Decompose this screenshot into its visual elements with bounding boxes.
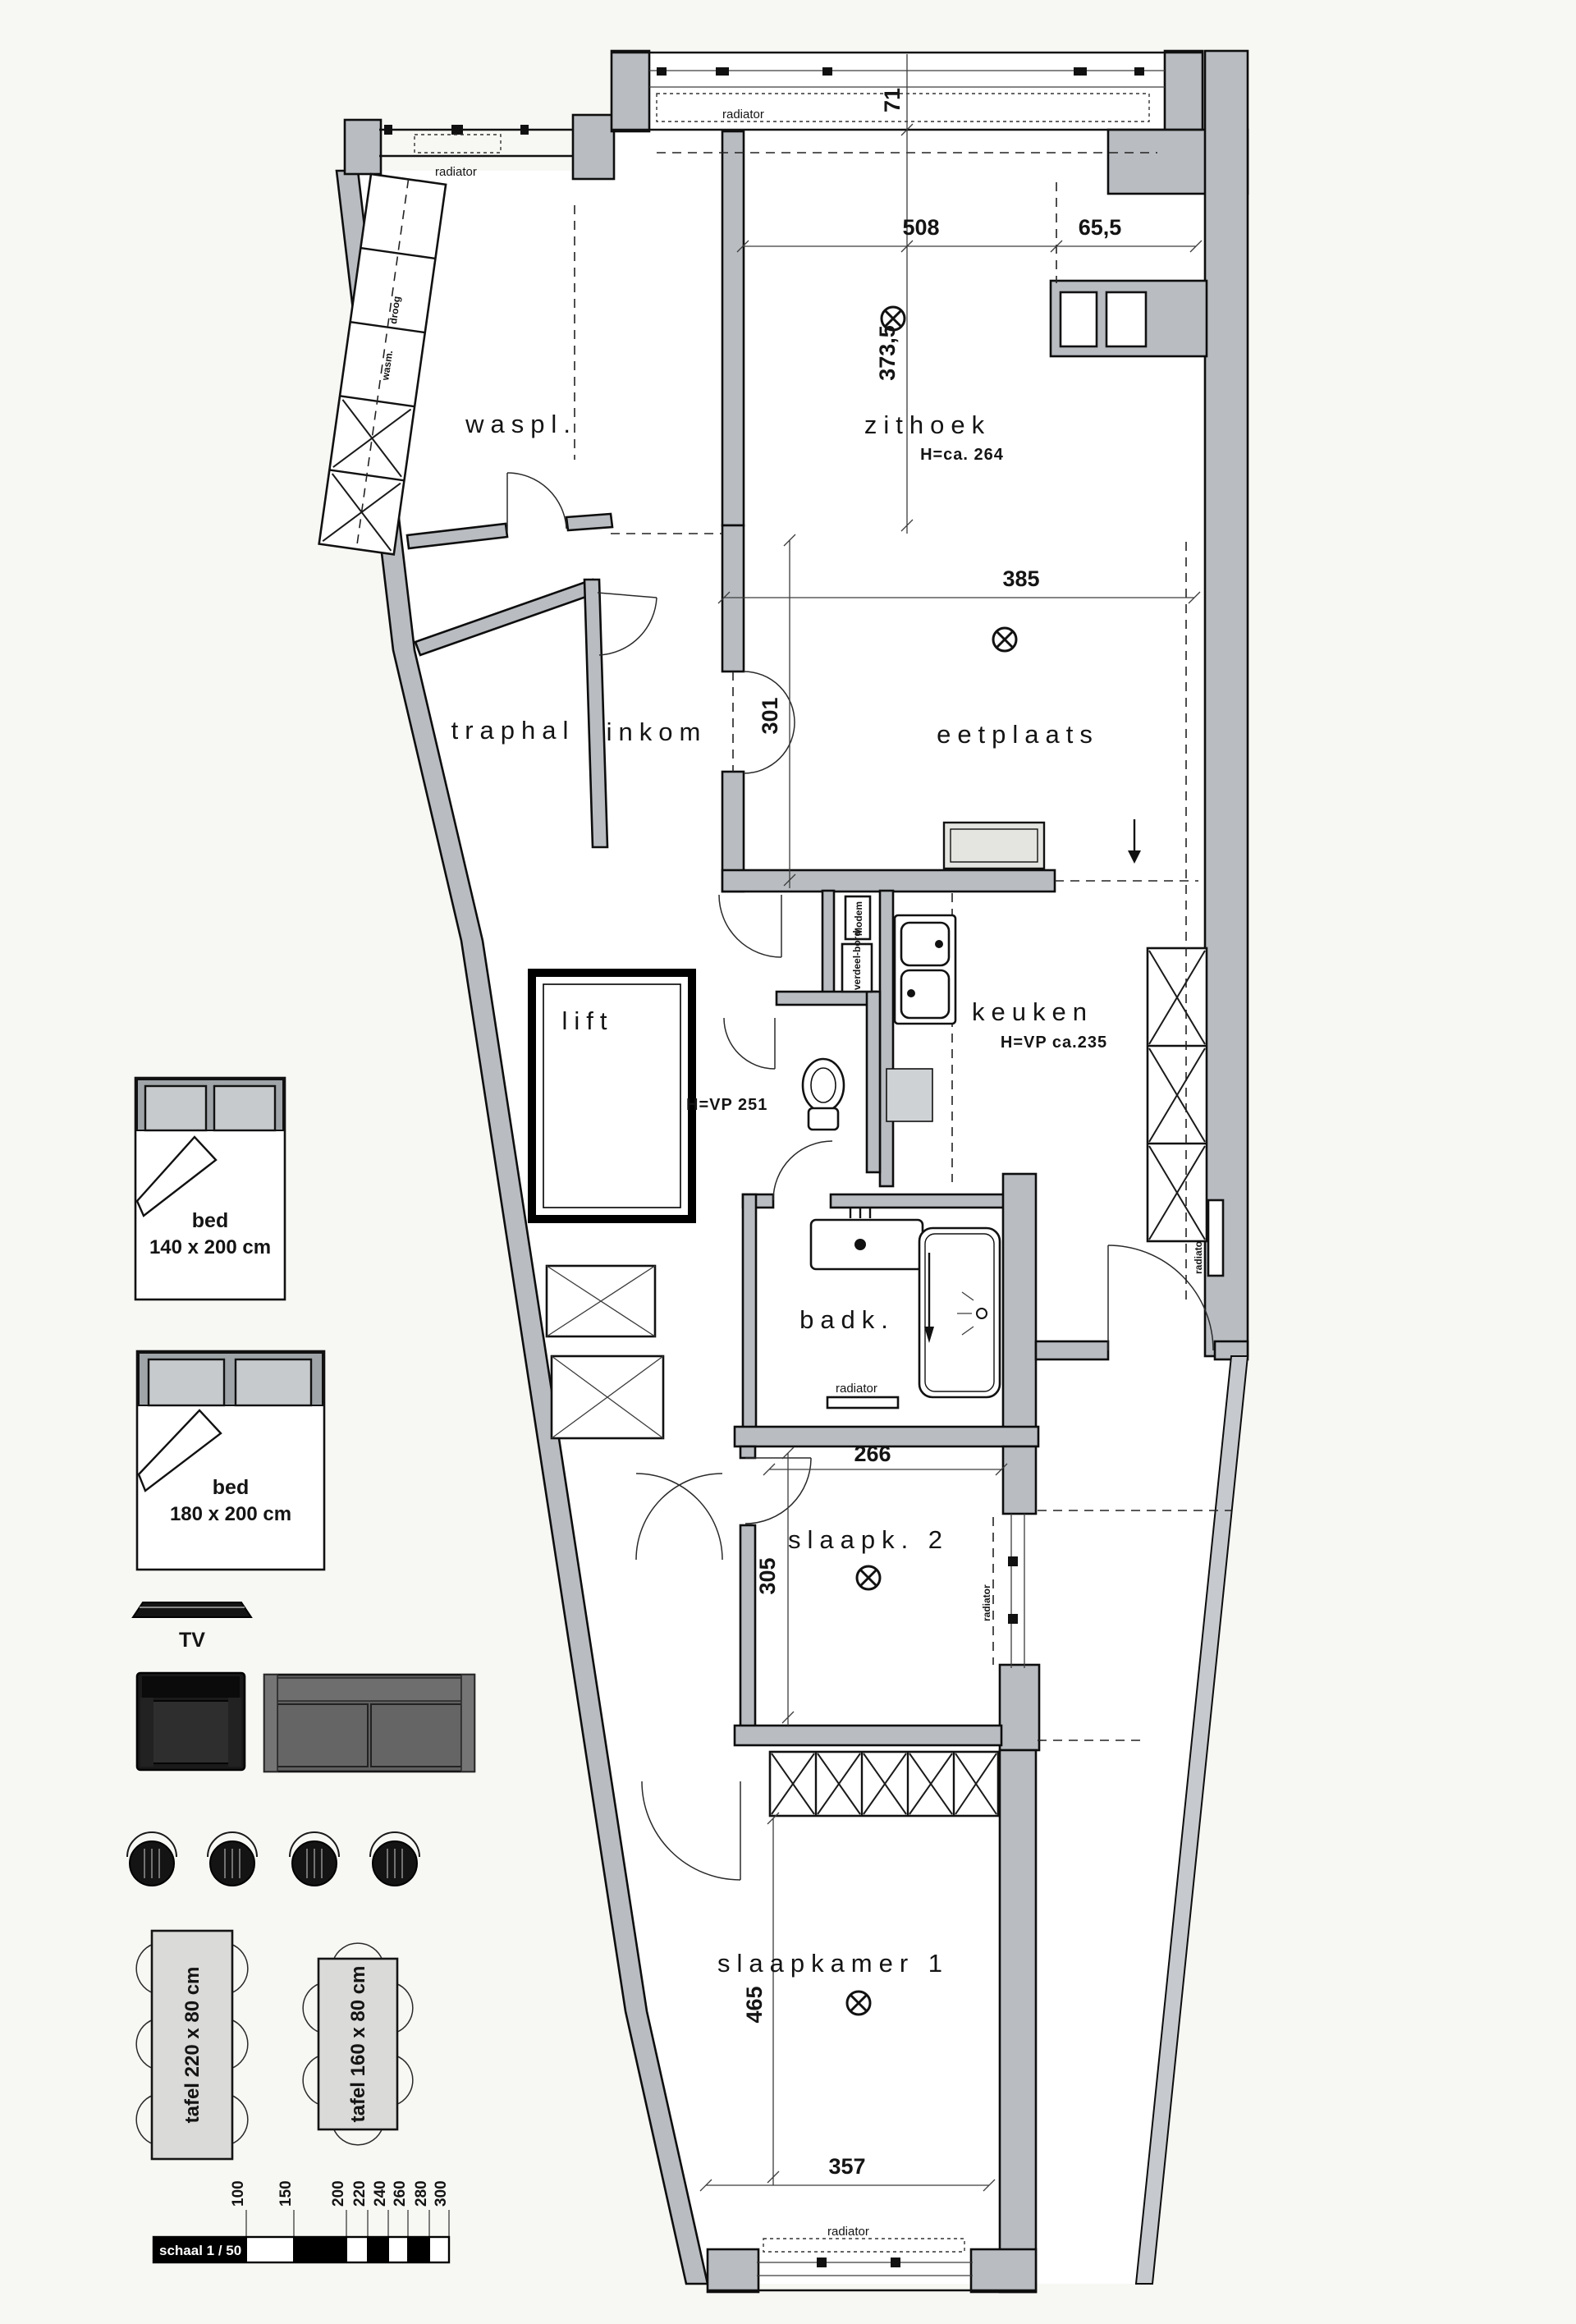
legend: bed 140 x 200 cm bed 180 x 200 cm TV: [127, 1078, 474, 2159]
dim-465: 465: [742, 1986, 767, 2023]
room-label-eetplaats: eetplaats: [937, 720, 1099, 749]
room-label-slaapkamer1: slaapkamer 1: [717, 1949, 949, 1978]
room-label-badk: badk.: [799, 1305, 895, 1334]
sofa-icon: [264, 1675, 474, 1772]
scale-label: schaal 1 / 50: [159, 2243, 241, 2258]
chair-icon: [290, 1832, 339, 1886]
scale-tick-260: 260: [392, 2180, 409, 2207]
scale-tick-300: 300: [433, 2180, 450, 2207]
note-zithoek-height: H=ca. 264: [920, 446, 1004, 464]
dim-301: 301: [758, 697, 782, 734]
dim-373-5: 373,5: [875, 325, 900, 381]
scale-tick-280: 280: [413, 2180, 430, 2207]
room-label-slaapk2: slaapk. 2: [788, 1525, 949, 1554]
radiator-label-badk: radiator: [836, 1382, 877, 1396]
legend-bed-140-size: 140 x 200 cm: [149, 1236, 271, 1258]
scale-tick-100: 100: [230, 2180, 247, 2207]
dim-357: 357: [828, 2154, 865, 2179]
note-keuken-height: H=VP ca.235: [1001, 1034, 1107, 1052]
chair-icon: [370, 1832, 419, 1886]
scale-tick-150: 150: [277, 2180, 295, 2207]
radiator-label-slaapk2: radiator: [981, 1584, 992, 1621]
dim-266: 266: [854, 1442, 891, 1466]
radiator-label-bay: radiator: [722, 108, 764, 121]
legend-table-160: tafel 160 x 80 cm: [303, 1943, 413, 2145]
legend-bed-140: bed 140 x 200 cm: [135, 1078, 285, 1300]
legend-table-160-label: tafel 160 x 80 cm: [347, 1966, 369, 2123]
dim-508: 508: [902, 215, 939, 240]
keuken-cabinets: [1148, 948, 1207, 1241]
dim-305: 305: [755, 1557, 780, 1594]
scale-tick-240: 240: [372, 2180, 389, 2207]
room-label-lift: lift: [562, 1006, 614, 1035]
tv-icon: [133, 1602, 251, 1617]
room-label-inkom: inkom: [607, 717, 708, 746]
verdeelbord-label: verdeel-bord: [851, 930, 863, 990]
wardrobe: [770, 1752, 998, 1816]
legend-table-220-label: tafel 220 x 80 cm: [181, 1967, 204, 2124]
toilet-icon: [803, 1059, 844, 1130]
legend-bed-140-label: bed: [192, 1209, 228, 1232]
radiator-label-waspl: radiator: [435, 165, 477, 179]
armchair-icon: [137, 1673, 245, 1770]
note-hal-height: H=VP 251: [686, 1096, 767, 1114]
legend-bed-180-size: 180 x 200 cm: [170, 1503, 291, 1525]
radiator-label-keuken: radiator: [1193, 1237, 1204, 1274]
legend-table-220: tafel 220 x 80 cm: [136, 1931, 248, 2159]
legend-bed-180: bed 180 x 200 cm: [137, 1351, 324, 1570]
round-chairs: [127, 1832, 419, 1886]
floorplan-page: radiator radiator radiator radiator radi…: [0, 0, 1576, 2324]
legend-bed-180-label: bed: [213, 1476, 249, 1499]
legend-tv-label: TV: [179, 1629, 205, 1652]
scale-tick-200: 200: [330, 2180, 347, 2207]
radiator-label-slaapkamer1: radiator: [827, 2225, 869, 2239]
room-label-zithoek: zithoek: [864, 410, 991, 439]
legend-tv: TV: [133, 1602, 251, 1652]
room-label-waspl: waspl.: [465, 410, 577, 438]
dim-71: 71: [880, 88, 905, 112]
chair-icon: [127, 1832, 176, 1886]
scale-bar: 100 150 200 220 240 260 280 300 schaal 1…: [153, 2180, 450, 2262]
floorplan-drawing: radiator radiator radiator radiator radi…: [0, 0, 1576, 2324]
dim-385: 385: [1002, 566, 1039, 591]
shower-icon: [919, 1228, 1000, 1397]
dim-65-5: 65,5: [1079, 215, 1122, 240]
chair-icon: [208, 1832, 257, 1886]
scale-tick-220: 220: [351, 2180, 369, 2207]
room-label-traphal: traphal: [451, 716, 575, 745]
room-label-keuken: keuken: [972, 997, 1093, 1026]
